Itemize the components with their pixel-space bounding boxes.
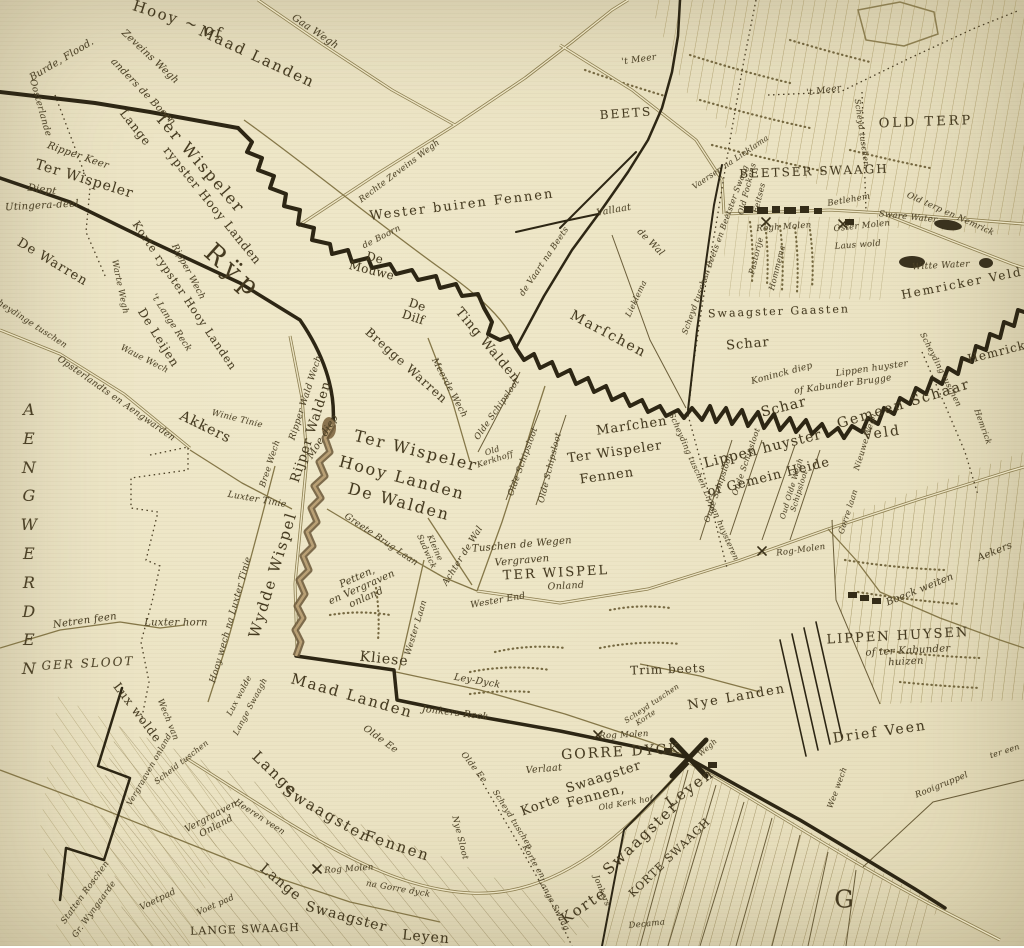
map-label: LIPPEN HUYSEN <box>826 626 969 648</box>
region-name-aengwerden: A E N G W E R D E N <box>21 396 38 684</box>
map-label: Oude Schipsloot <box>703 454 735 524</box>
map-label: Korte <box>634 708 657 728</box>
map-label: Winie Tinie <box>211 409 264 431</box>
map-label: ter een <box>989 743 1021 761</box>
map-label: Kleine Sudwick <box>414 530 445 571</box>
map-label: Tuschen de Wegen <box>472 535 573 555</box>
map-label: Maad Landen <box>289 671 415 722</box>
map-label: Utingera-deel <box>5 198 79 213</box>
map-label: Lange <box>117 107 154 149</box>
map-label: Rijper Walden <box>289 379 336 484</box>
map-label: Lange <box>249 748 302 800</box>
map-label: Lange Swaag <box>535 877 570 932</box>
map-label: Waue Wech <box>119 344 170 376</box>
map-label: Ting Walden <box>451 306 522 387</box>
map-label: Lippen huyster <box>702 428 823 473</box>
map-label: Olde Ee <box>361 724 400 756</box>
map-label: Scheyding tuschen <box>917 331 962 408</box>
map-label: Korte <box>558 885 610 928</box>
map-label: Schar <box>760 395 809 421</box>
map-label: De Leijen <box>135 306 182 370</box>
map-label: Betlehem <box>827 193 871 210</box>
map-label: Vergraven <box>494 553 550 569</box>
map-label: Wydde Wispel <box>246 510 300 641</box>
map-label: Rogh Molen <box>756 221 812 234</box>
map-label: Koninck diep <box>750 361 814 387</box>
map-label: Decama <box>628 918 665 931</box>
map-label: Oster Molen <box>833 219 891 234</box>
map-label: Rÿp <box>198 238 268 305</box>
map-label: na Gorre dyck <box>365 880 431 901</box>
map-label: Lange <box>256 861 304 904</box>
map-label: 't Lange Reck <box>149 292 194 353</box>
map-label: Olde Schipsloot <box>507 426 541 497</box>
map-label: Zeveins Wegh <box>119 28 181 87</box>
map-label: LANGE SWAAGH <box>190 922 300 938</box>
map-label: Kliese <box>359 650 410 671</box>
map-label: Aekers <box>976 540 1014 564</box>
map-label: Verlaat <box>525 763 562 777</box>
map-label: Gaa Wegh <box>290 12 341 51</box>
map-label: Lux wolde <box>110 680 164 745</box>
map-label: Lange Swaagh <box>232 677 270 737</box>
map-label: Schar <box>726 336 771 354</box>
map-label: 't Meer <box>621 53 657 68</box>
map-label: Greete Brug Laan <box>342 512 419 569</box>
map-label: De Walden <box>346 480 452 525</box>
map-label: Old terp en Nemrick <box>905 191 995 238</box>
map-label: Laus wold <box>834 240 881 253</box>
map-label: Old Kerkhoff <box>473 442 514 471</box>
map-label: Voetpad <box>138 887 177 913</box>
map-label: Wester End <box>470 591 527 611</box>
map-label: Swaagster <box>600 798 682 878</box>
map-label: Vergraaven onland <box>126 732 175 807</box>
map-label: Wester buiren Fennen <box>369 187 555 224</box>
map-label: Nieuwe Wegh <box>853 412 879 471</box>
map-label: BEETS <box>599 105 652 122</box>
map-label: Old Kerk hof <box>598 795 654 813</box>
map-label: Bree Wech <box>259 439 283 489</box>
map-label: Hemrick <box>971 408 992 446</box>
map-label: Hooy Landen <box>337 453 467 504</box>
map-label: Leyen <box>402 928 451 948</box>
map-label: Fennen <box>362 827 432 864</box>
map-label: Opsterlandts en Aengwarden <box>55 354 177 443</box>
map-label: Maad Landen <box>196 23 318 92</box>
map-label: Ter Wispeler <box>352 427 480 475</box>
map-label: KORTE SWAAGH <box>627 816 714 900</box>
map-label: Rooigruppel <box>914 771 970 801</box>
map-label: Scheid tuschen <box>153 739 211 787</box>
map-label: Akkers <box>177 409 234 447</box>
map-label: Bregge Warren <box>362 326 450 407</box>
map-label: Achter de Wal <box>441 524 486 587</box>
map-label: Jonkers Reck <box>421 705 489 724</box>
map-label: Lieklema <box>625 279 650 319</box>
map-label: of Kabunder Brugge <box>794 373 893 397</box>
map-label: Ripper Keer <box>46 140 111 172</box>
map-label: Heeren veen <box>232 798 286 838</box>
map-label: Wee wech <box>826 766 849 810</box>
map-label: Boeck weiten <box>885 571 956 608</box>
map-label: Meerde Wech <box>429 356 469 419</box>
map-label: Burde, Flood. <box>28 36 96 83</box>
map-label: GORRE DYCK <box>561 742 681 764</box>
map-label: TER WISPEL <box>503 564 610 584</box>
map-label: Ripper Wald Wech <box>288 354 325 441</box>
map-label: of Gemein Heide <box>706 456 832 501</box>
map-label: Rog Molen <box>324 864 374 877</box>
map-label: of ter Kabunder <box>865 643 951 659</box>
map-label: Vaersen na Lieklama <box>691 134 771 192</box>
map-label: Lux wolde <box>226 674 255 717</box>
map-label: Trim beets <box>630 662 706 678</box>
map-label: De Mouwe <box>347 246 398 283</box>
map-label: Korte <box>519 792 563 820</box>
map-label: Warte Wegh <box>109 259 130 315</box>
map-label: Feitses <box>752 182 768 214</box>
map-label: Gemeen Schaar <box>835 377 972 433</box>
map-label: Olde Schipsloot <box>538 432 565 504</box>
map-label: Petten, en Vergraven onland <box>323 558 402 618</box>
map-label: Oosterlande <box>27 78 53 138</box>
map-label: Hooy ~ of <box>131 0 226 43</box>
map-label: Fennen, <box>565 782 627 812</box>
region-letter-g: G <box>834 887 855 914</box>
map-label: Ripper Wech <box>169 242 207 301</box>
map-label: Statten Roschen <box>60 860 112 927</box>
map-label: Korte rypster Hooy Landen <box>129 219 238 373</box>
map-label: rypster Hooy Landen <box>160 144 263 267</box>
map-label: Rog-Molen <box>776 543 826 559</box>
map-label: De Warren <box>14 236 90 290</box>
map-label: Sware Water <box>878 210 938 226</box>
map-label: Ter Wispeler <box>152 109 249 217</box>
map-label: Nye Landen <box>687 682 788 714</box>
map-label: Vallaat <box>596 203 632 220</box>
map-label: Scheyding tuschen Lippen huysteren <box>666 412 740 562</box>
map-label: Luxter horn <box>144 617 208 628</box>
map-label: Lippen huyster <box>835 359 909 379</box>
map-label: Marſchen <box>567 308 649 362</box>
map-label: Leyen <box>662 765 717 811</box>
map-label: Marſchen <box>595 415 668 439</box>
map-label: GER SLOOT <box>41 655 135 673</box>
map-label: Swaagster <box>564 759 643 797</box>
map-label: Veld <box>862 424 902 445</box>
map-label: Wester Laan <box>404 599 430 656</box>
map-label: Netren feen <box>52 611 117 631</box>
map-label: Luxter Tinie <box>227 490 287 510</box>
map-label: Voet pad <box>196 894 236 919</box>
map-label: Wech van <box>154 698 179 742</box>
map-label: De Dilf <box>400 296 430 329</box>
map-label: Moe diep <box>305 413 341 461</box>
map-label: Olde Schipsloot <box>473 378 522 443</box>
map-label: de Vaart na Beets <box>518 226 571 299</box>
map-label: Witte Water <box>912 259 970 272</box>
map-label: Ley-Dyck <box>453 673 501 692</box>
map-label: Scheyd tuschen <box>852 99 870 168</box>
map-canvas: Hooy ~ ofMaad LandenGaa WeghBurde, Flood… <box>0 0 1024 946</box>
map-label: de Wal <box>634 227 666 259</box>
map-label: Drief Veen <box>832 719 928 748</box>
map-label: Gorre laan <box>838 489 861 536</box>
map-label: Oude Schipsloot <box>731 427 763 497</box>
map-label: Gr. Wyngaarde <box>71 880 119 941</box>
map-label: Fennen <box>579 466 635 488</box>
map-label: Ter Wispeler <box>567 439 664 467</box>
map-label: Korte en <box>520 844 546 881</box>
map-label: huizen <box>888 655 924 668</box>
map-label: Hooy wech na Luxter Tinie <box>208 556 254 684</box>
map-label: Scheyd tuschen <box>623 683 681 726</box>
map-label: Hemricker <box>966 335 1024 366</box>
map-label: BEETSER SWAAGH <box>739 163 889 182</box>
map-label: Vergraaven Onland <box>183 799 244 845</box>
map-label: 't Meer <box>806 84 842 99</box>
map-label: Rog Molen <box>599 730 649 742</box>
map-label: Swaagster Gaasten <box>708 303 850 320</box>
map-label: Oud Olde Wegh Schipsloot <box>779 457 814 523</box>
map-label: Old Fockens <box>737 162 759 216</box>
map-label: Jonkers <box>591 874 612 908</box>
map-label: Pastorije <box>748 236 766 275</box>
map-label: Scheyd tuschen <box>490 789 534 852</box>
map-label: Ter Wispeler <box>33 158 135 203</box>
map-label: Onland <box>547 581 584 594</box>
map-label: Olde Ee <box>458 751 488 785</box>
map-label: Scheydinge tuschen <box>0 293 68 351</box>
map-label: Nye Sloot <box>449 815 469 861</box>
map-label: Swaagster <box>303 900 388 937</box>
map-label: Hommema <box>768 245 788 292</box>
map-label: Scheyd tuschen Beets en Beetster Swaag <box>681 164 751 336</box>
map-label: Rechte Zeveins Wegh <box>358 139 442 206</box>
map-label: Wegh <box>697 737 719 758</box>
map-label: Swaagster <box>279 782 373 846</box>
label-layer: Hooy ~ ofMaad LandenGaa WeghBurde, Flood… <box>0 0 1024 946</box>
map-label: anders de Boorn <box>108 56 177 127</box>
map-label: Hemricker Veld <box>900 266 1024 303</box>
map-label: Diept <box>27 182 57 197</box>
map-label: OLD TERP <box>879 114 974 132</box>
map-label: de Boorn <box>361 224 402 251</box>
